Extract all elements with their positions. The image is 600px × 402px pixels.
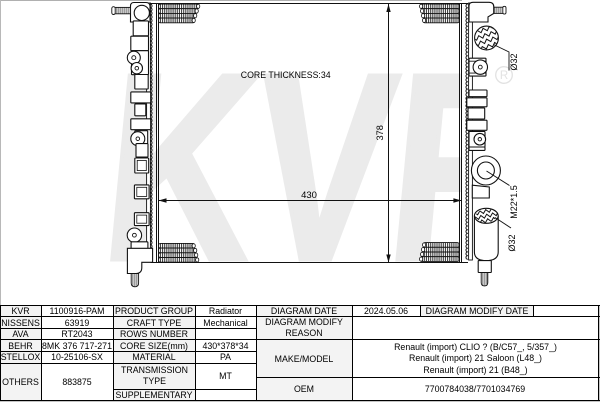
svg-text:Ø32: Ø32 xyxy=(507,234,517,251)
svg-text:CORE THICKNESS:34: CORE THICKNESS:34 xyxy=(241,70,331,80)
svg-text:378: 378 xyxy=(375,125,385,140)
svg-text:R: R xyxy=(500,70,508,82)
svg-text:Ø32: Ø32 xyxy=(509,53,519,70)
svg-text:430: 430 xyxy=(301,190,317,201)
svg-text:M22*1.5: M22*1.5 xyxy=(509,185,519,219)
